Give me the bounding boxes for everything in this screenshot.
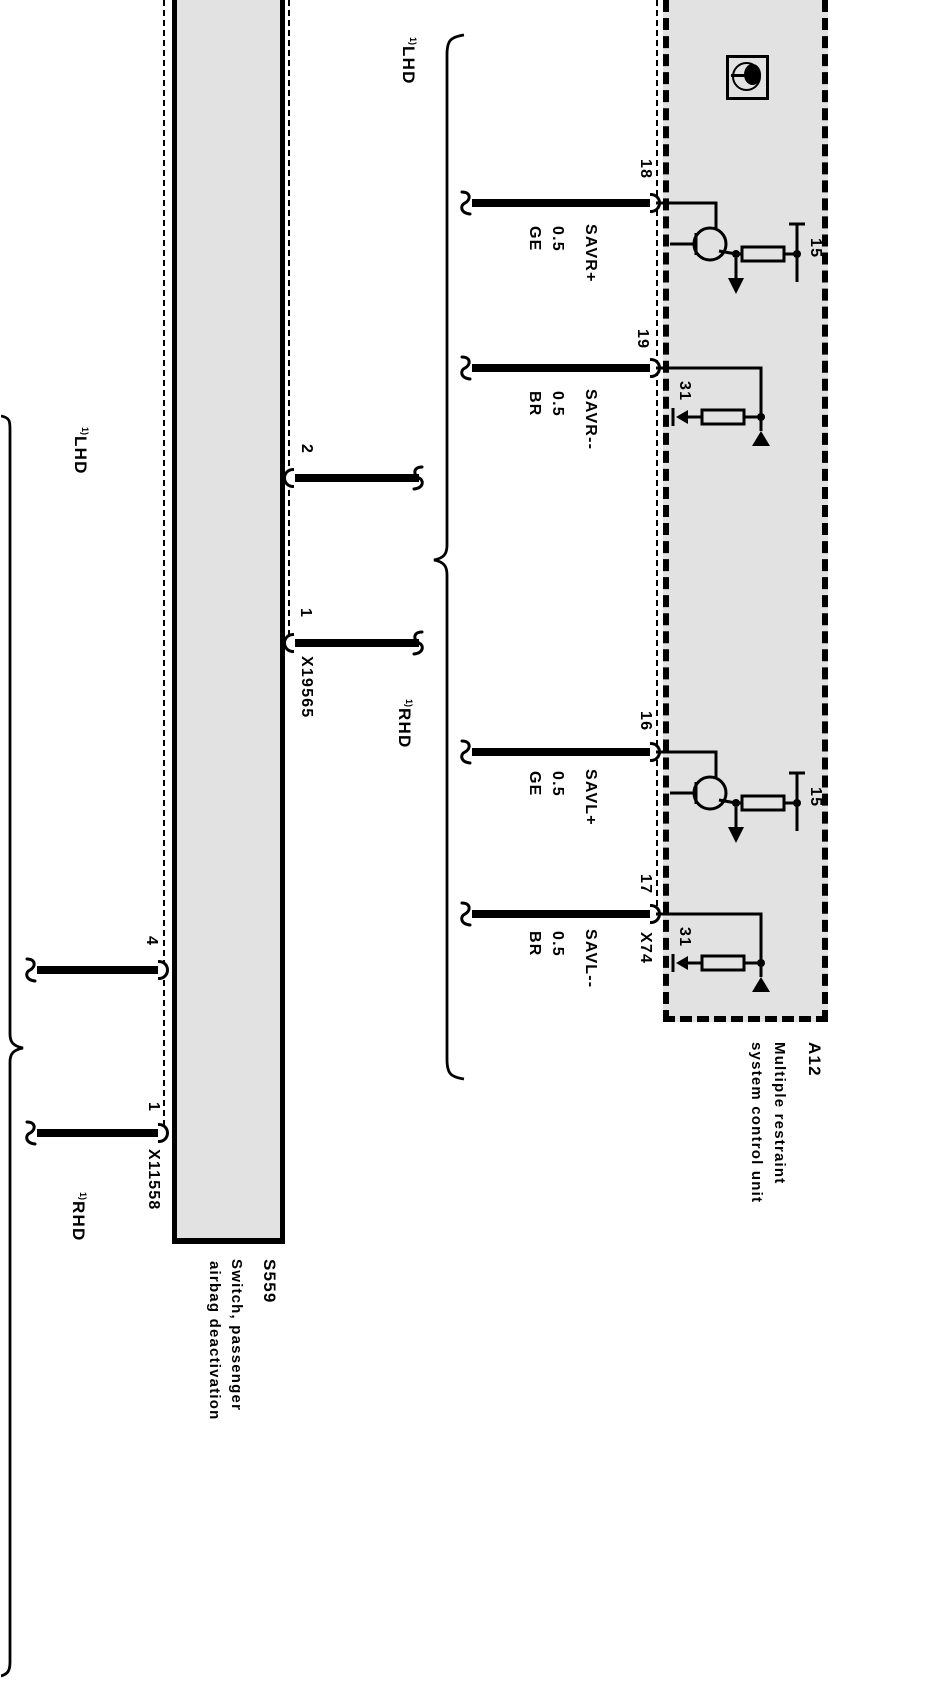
connector-line-x11558 (163, 0, 165, 1126)
control-unit-desc-line2: system control unit (749, 1042, 764, 1203)
terminal-label-31: 31 (676, 381, 692, 401)
pin-label-17: 17 (637, 874, 653, 894)
wire-savl-plus (472, 748, 650, 756)
wire-label-color: GE (526, 771, 542, 797)
transistor-circuit-pin16 (656, 745, 808, 849)
transistor-circuit-pin18 (656, 196, 808, 300)
ground-circuit-pin17 (656, 907, 808, 1003)
wire-label-size: 0.5 (549, 771, 565, 797)
connector-line-x19565 (288, 0, 290, 636)
wire-savr-plus (472, 199, 650, 207)
variant-brace-right (428, 33, 466, 1083)
control-unit-id: A12 (806, 1042, 823, 1077)
wire-label-name: SAVR-- (582, 389, 598, 450)
switch-desc-line1: Switch, passenger (229, 1259, 244, 1411)
pin-label-x19565-1: 1 (297, 608, 313, 618)
terminal-label-15: 15 (807, 238, 823, 258)
pin-label-x11558-4: 4 (143, 936, 159, 946)
pin-cup-x11558-4 (158, 960, 169, 980)
wire-label-color: BR (526, 931, 542, 957)
wire-x19565-pin2 (295, 474, 419, 482)
label-rhd-right: 1)RHD (396, 699, 413, 748)
wire-x11558-pin4 (37, 966, 159, 974)
terminal-label-15: 15 (807, 787, 823, 807)
label-lhd-right: 1)LHD (400, 37, 417, 85)
wire-x11558-pin1 (37, 1129, 159, 1137)
pin-label-x11558-1: 1 (145, 1102, 161, 1112)
wire-break-icon (411, 630, 425, 656)
pin-label-19: 19 (634, 329, 650, 349)
wire-x19565-pin1 (295, 639, 419, 647)
pin-label-18: 18 (637, 159, 653, 179)
wire-label-name: SAVL+ (582, 769, 598, 826)
wire-label-name: SAVL-- (582, 929, 598, 988)
connector-label-x19565: X19565 (298, 656, 314, 718)
wiring-diagram: 1)LHD 1)RHD 1)LHD 1)RHD 18 19 16 17 X74 … (0, 0, 934, 1704)
wire-label-size: 0.5 (549, 226, 565, 252)
pin-label-x19565-2: 2 (298, 444, 314, 454)
wire-label-size: 0.5 (549, 391, 565, 417)
switch-body (172, 0, 285, 1244)
label-rhd-left: 1)RHD (70, 1192, 87, 1241)
pin-cup-x11558-1 (158, 1123, 169, 1143)
switch-desc-line2: airbag deactivation (207, 1261, 222, 1421)
variant-brace-left (1, 414, 27, 1680)
wire-savr-minus (472, 364, 650, 372)
control-unit-body (663, 0, 828, 1022)
connector-label-x74: X74 (637, 932, 653, 964)
wire-label-size: 0.5 (549, 931, 565, 957)
wire-label-name: SAVR+ (582, 224, 598, 283)
terminal-label-31: 31 (676, 927, 692, 947)
control-unit-icon (726, 55, 769, 100)
connector-label-x11558: X11558 (145, 1149, 161, 1210)
control-unit-desc-line1: Multiple restraint (772, 1042, 787, 1184)
switch-id: S559 (261, 1259, 278, 1304)
wire-savl-minus (472, 910, 650, 918)
ground-circuit-pin19 (656, 361, 808, 457)
pin-label-16: 16 (637, 711, 653, 731)
label-lhd-left: 1)LHD (72, 427, 89, 475)
wire-break-icon (411, 465, 425, 491)
wire-label-color: BR (526, 391, 542, 417)
wire-label-color: GE (526, 226, 542, 252)
